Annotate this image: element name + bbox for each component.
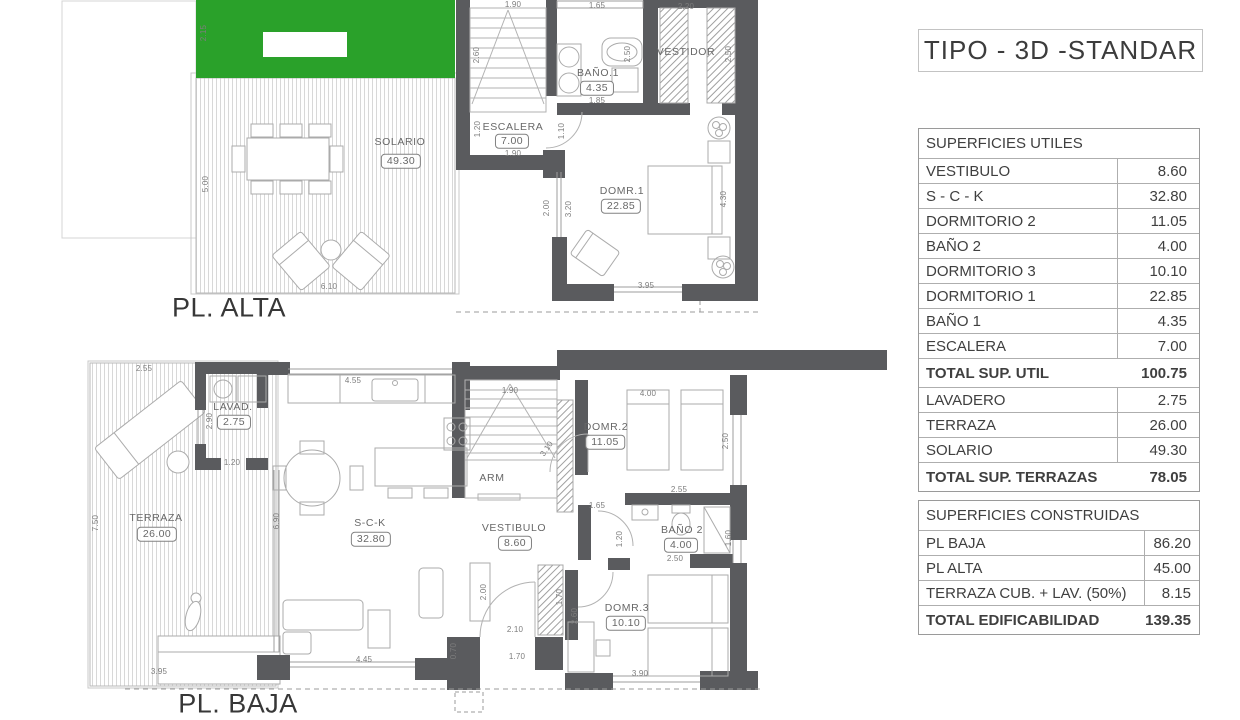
room-label: TERRAZA: [129, 513, 182, 524]
dimension-label: 3.95: [151, 668, 167, 676]
table-row: BAÑO 14.35: [919, 308, 1199, 333]
table-row: PL BAJA86.20: [919, 530, 1199, 555]
row-label: LAVADERO: [919, 388, 1117, 412]
room-label: BAÑO 2: [661, 525, 703, 536]
row-value: 8.15: [1144, 581, 1199, 605]
dimension-label: 4.45: [356, 656, 372, 664]
row-value: 22.85: [1117, 284, 1199, 308]
row-value: 10.10: [1117, 259, 1199, 283]
row-label: DORMITORIO 1: [919, 284, 1117, 308]
row-label: TOTAL SUP. UTIL: [919, 359, 1117, 387]
table-row: LAVADERO2.75: [919, 387, 1199, 412]
room-area-value: 2.75: [217, 415, 251, 430]
row-value: 49.30: [1117, 438, 1199, 462]
row-value: 2.75: [1117, 388, 1199, 412]
row-label: PL ALTA: [919, 556, 1144, 580]
room-label: DOMR.2: [584, 422, 628, 433]
row-label: TERRAZA: [919, 413, 1117, 437]
table-row: DORMITORIO 310.10: [919, 258, 1199, 283]
row-label: PL BAJA: [919, 531, 1144, 555]
row-value: 86.20: [1144, 531, 1199, 555]
row-label: SOLARIO: [919, 438, 1117, 462]
dimension-label: 4.55: [345, 377, 361, 385]
row-value: 100.75: [1117, 359, 1199, 387]
row-label: VESTIBULO: [919, 159, 1117, 183]
dimension-label: 2.50: [667, 555, 683, 563]
row-label: TOTAL EDIFICABILIDAD: [919, 606, 1135, 634]
row-value: 11.05: [1117, 209, 1199, 233]
room-label: LAVAD.: [213, 402, 252, 413]
room-area-value: 4.00: [664, 538, 698, 553]
row-label: SUPERFICIES UTILES: [919, 129, 1199, 158]
row-value: 4.00: [1117, 234, 1199, 258]
table-row: S - C - K32.80: [919, 183, 1199, 208]
dimension-label: 1.70: [509, 653, 525, 661]
dimension-label: 1.90: [502, 387, 518, 395]
row-label: DORMITORIO 2: [919, 209, 1117, 233]
dimension-label: 2.00: [480, 584, 488, 600]
table-row: TOTAL EDIFICABILIDAD139.35: [919, 605, 1199, 634]
table-row: VESTIBULO8.60: [919, 158, 1199, 183]
row-value: 4.35: [1117, 309, 1199, 333]
plan-sheet: PL. ALTASOLARIO49.30ESCALERA7.00BAÑO.14.…: [0, 0, 1240, 720]
row-value: 26.00: [1117, 413, 1199, 437]
room-label: VESTIBULO: [482, 523, 546, 534]
dimension-label: 2.50: [722, 433, 730, 449]
plan-title: PL. BAJA: [178, 691, 298, 718]
row-value: 45.00: [1144, 556, 1199, 580]
room-label: ARM: [479, 473, 504, 484]
superficies-utiles-table: SUPERFICIES UTILESVESTIBULO8.60S - C - K…: [918, 128, 1200, 492]
dimension-label: 2.55: [136, 365, 152, 373]
table-row: TERRAZA CUB. + LAV. (50%)8.15: [919, 580, 1199, 605]
row-label: BAÑO 2: [919, 234, 1117, 258]
row-label: BAÑO 1: [919, 309, 1117, 333]
dimension-label: 0.70: [450, 643, 458, 659]
table-row: DORMITORIO 122.85: [919, 283, 1199, 308]
room-area-value: 8.60: [498, 536, 532, 551]
room-label: DOMR.3: [605, 603, 649, 614]
room-label: S-C-K: [354, 518, 386, 529]
dimension-label: 1.70: [556, 589, 564, 605]
row-label: SUPERFICIES CONSTRUIDAS: [919, 501, 1199, 530]
table-row: TERRAZA26.00: [919, 412, 1199, 437]
dimension-label: 2.10: [507, 626, 523, 634]
dimension-label: 4.00: [640, 390, 656, 398]
table-row: SOLARIO49.30: [919, 437, 1199, 462]
dimension-label: 2.90: [206, 413, 214, 429]
table-row: TOTAL SUP. TERRAZAS78.05: [919, 462, 1199, 491]
room-area-value: 10.10: [606, 616, 646, 631]
dimension-label: 1.20: [616, 531, 624, 547]
row-label: ESCALERA: [919, 334, 1117, 358]
row-value: 8.60: [1117, 159, 1199, 183]
dimension-label: 6.90: [273, 513, 281, 529]
table-row: TOTAL SUP. UTIL100.75: [919, 358, 1199, 387]
row-value: 7.00: [1117, 334, 1199, 358]
superficies-construidas-table: SUPERFICIES CONSTRUIDASPL BAJA86.20PL AL…: [918, 500, 1200, 635]
row-label: S - C - K: [919, 184, 1117, 208]
dimension-label: 3.90: [632, 670, 648, 678]
dimension-label: 1.20: [224, 459, 240, 467]
room-area-value: 26.00: [137, 527, 177, 542]
dimension-label: 1.60: [725, 530, 733, 546]
room-area-value: 32.80: [351, 532, 391, 547]
row-value: 32.80: [1117, 184, 1199, 208]
dimension-label: 1.65: [589, 502, 605, 510]
table-row: ESCALERA7.00: [919, 333, 1199, 358]
table-row: SUPERFICIES CONSTRUIDAS: [919, 501, 1199, 530]
dimension-label: 2.55: [671, 486, 687, 494]
row-label: TOTAL SUP. TERRAZAS: [919, 463, 1117, 491]
row-value: 139.35: [1135, 606, 1199, 634]
dimension-label: 3.10: [539, 440, 555, 458]
table-row: PL ALTA45.00: [919, 555, 1199, 580]
dimension-label: 7.50: [92, 515, 100, 531]
table-row: DORMITORIO 211.05: [919, 208, 1199, 233]
plan-type-title: TIPO - 3D -STANDAR: [918, 29, 1203, 72]
room-area-value: 11.05: [585, 435, 625, 450]
dimension-label: 2.60: [571, 608, 579, 624]
row-label: TERRAZA CUB. + LAV. (50%): [919, 581, 1144, 605]
row-value: 78.05: [1117, 463, 1199, 491]
row-label: DORMITORIO 3: [919, 259, 1117, 283]
table-row: BAÑO 24.00: [919, 233, 1199, 258]
table-row: SUPERFICIES UTILES: [919, 129, 1199, 158]
